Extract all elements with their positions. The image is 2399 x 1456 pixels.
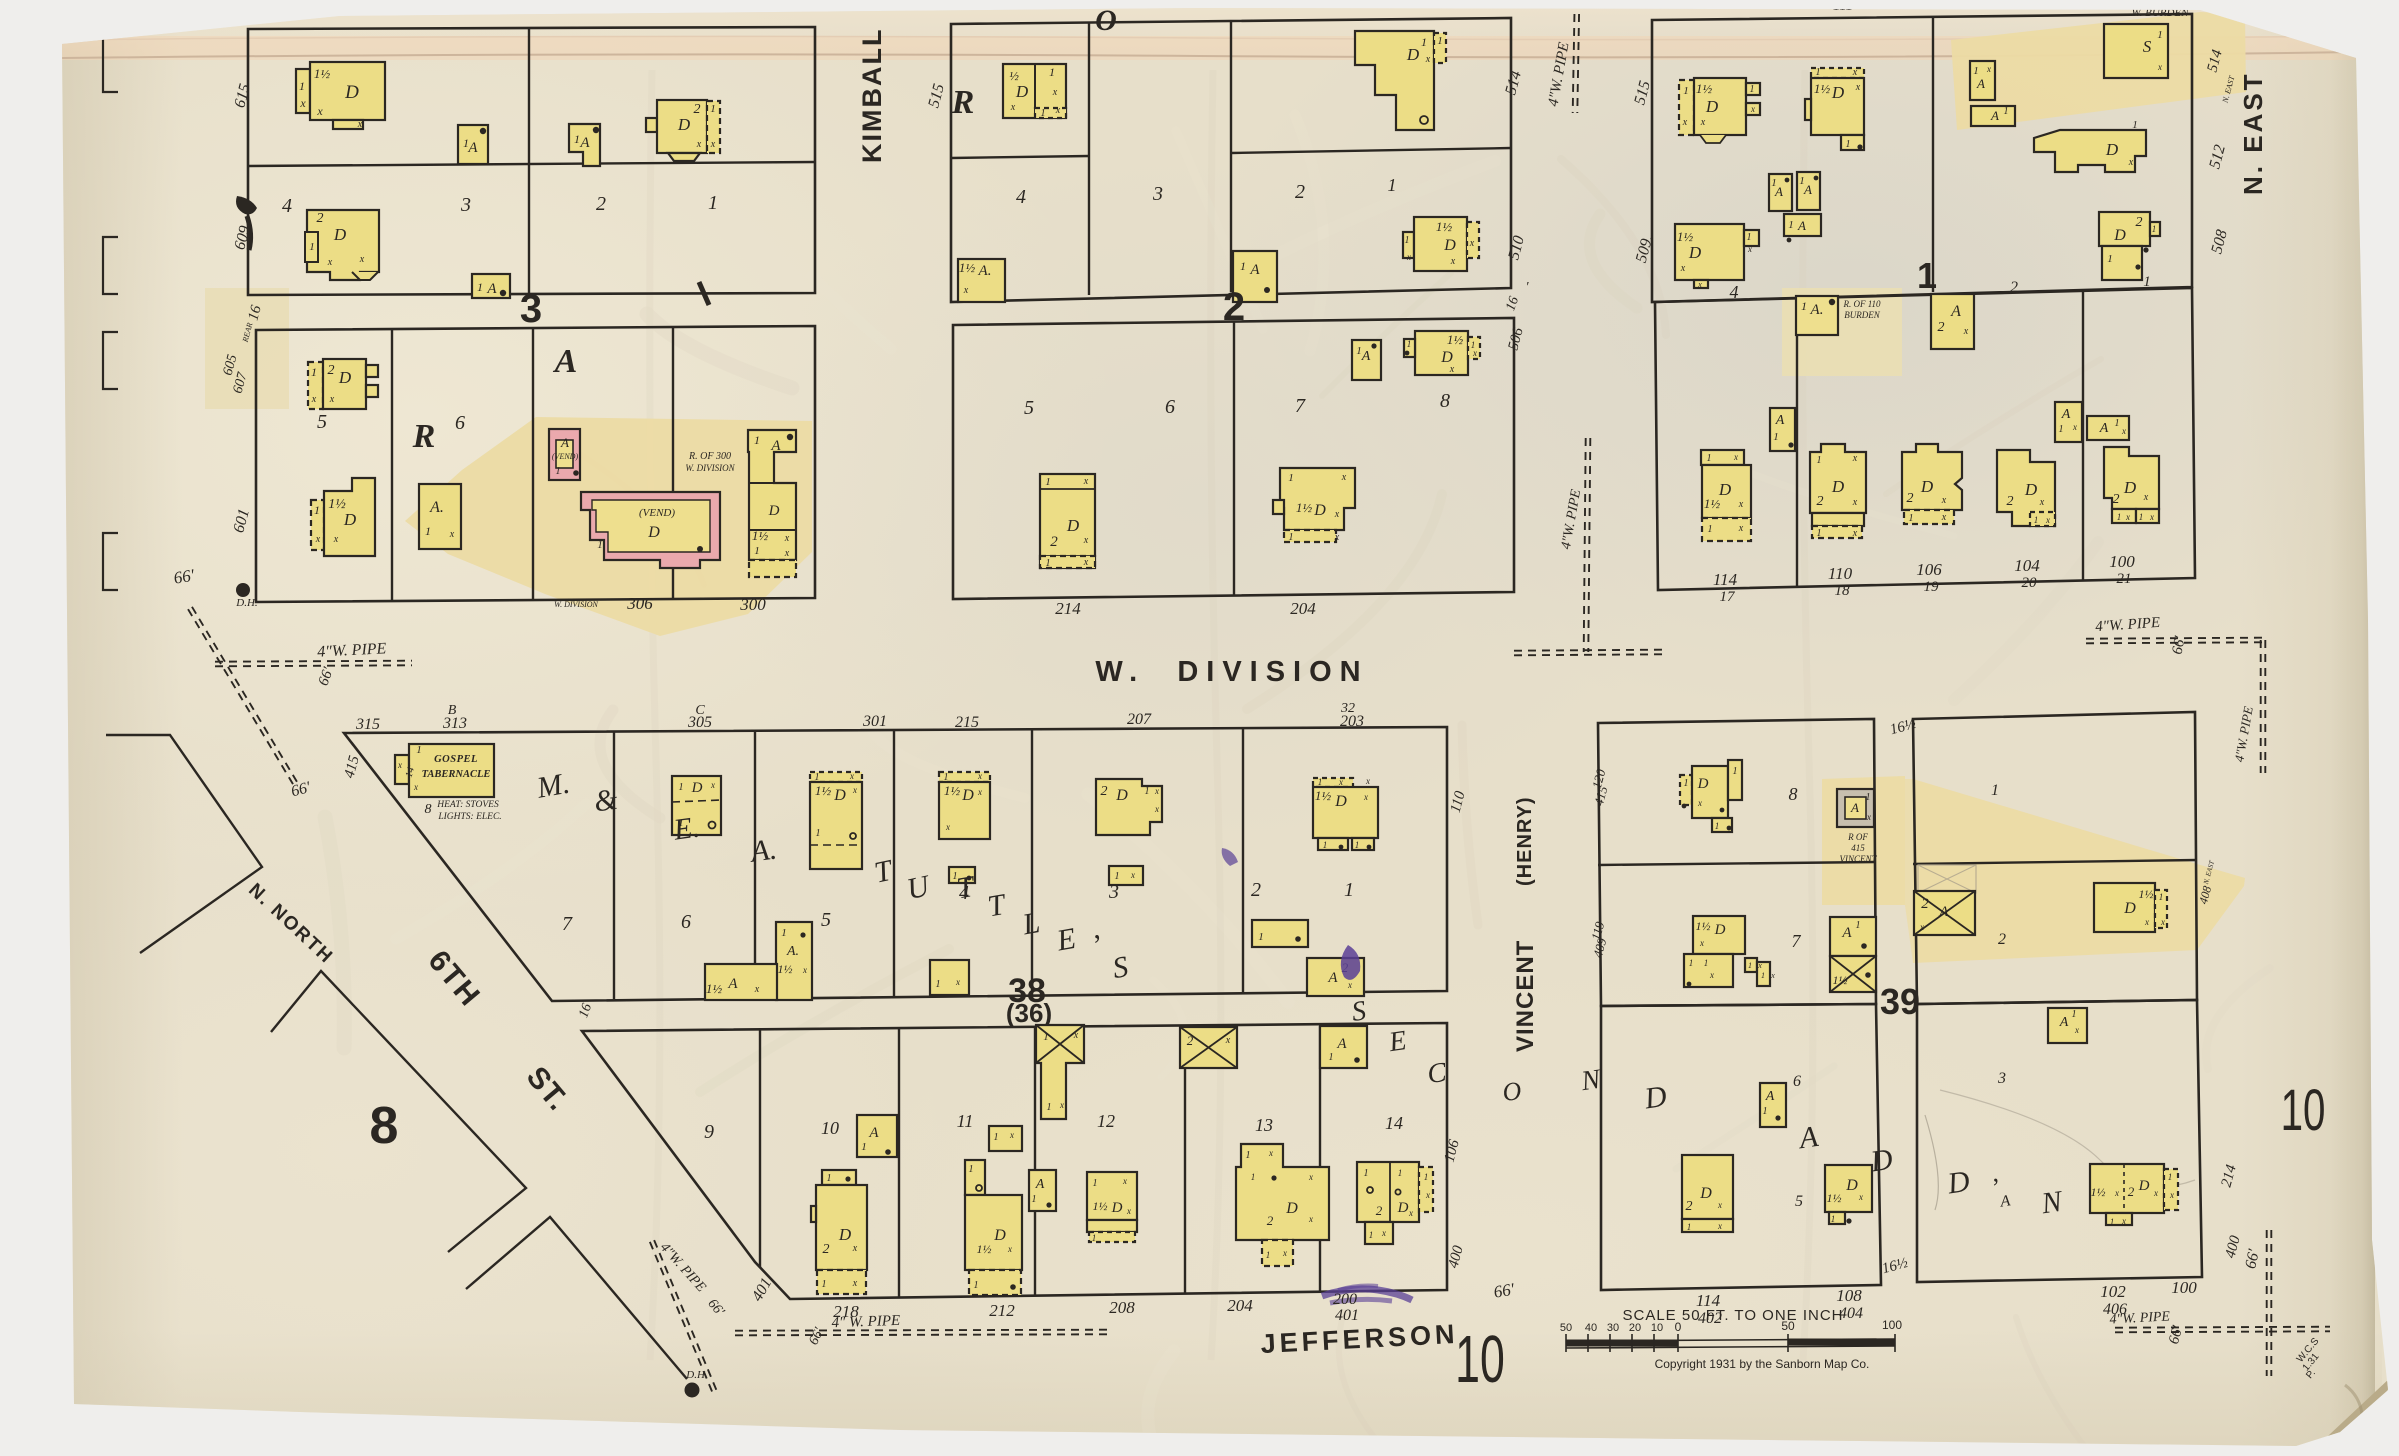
svg-text:21: 21 — [2117, 571, 2132, 587]
svg-text:1: 1 — [2143, 274, 2151, 290]
svg-text:1: 1 — [425, 524, 431, 538]
svg-text:x: x — [1852, 67, 1858, 78]
svg-text:x: x — [1308, 1172, 1313, 1182]
svg-text:2: 2 — [1295, 181, 1305, 203]
svg-text:x: x — [784, 533, 790, 544]
svg-text:1: 1 — [1909, 513, 1914, 524]
svg-text:x: x — [1449, 364, 1455, 375]
svg-text:x: x — [329, 394, 335, 405]
svg-text:x: x — [2074, 1025, 2079, 1035]
svg-text:x: x — [1073, 1030, 1079, 1041]
svg-text:R. OF 110: R. OF 110 — [1842, 299, 1881, 309]
svg-text:2: 2 — [1251, 879, 1261, 901]
svg-text:2: 2 — [1998, 931, 2006, 948]
svg-text:A: A — [1850, 800, 1859, 815]
svg-text:x: x — [784, 548, 790, 559]
svg-text:x: x — [1425, 54, 1431, 65]
svg-text:1: 1 — [1748, 961, 1752, 970]
svg-text:x: x — [413, 782, 418, 792]
svg-text:1: 1 — [2117, 512, 2122, 522]
svg-text:2: 2 — [2136, 215, 2143, 230]
svg-text:301: 301 — [862, 713, 887, 730]
svg-text:1½: 1½ — [314, 66, 331, 81]
svg-text:x: x — [1680, 263, 1686, 274]
svg-text:x: x — [1347, 980, 1352, 990]
svg-text:x: x — [977, 771, 982, 781]
svg-text:x: x — [1010, 102, 1016, 113]
svg-text:D: D — [677, 115, 691, 134]
svg-text:10: 10 — [1651, 1322, 1663, 1334]
svg-text:1: 1 — [1045, 476, 1051, 488]
svg-text:1½: 1½ — [1814, 81, 1831, 96]
svg-text:102: 102 — [2100, 1282, 2126, 1301]
svg-text:A: A — [1976, 76, 1985, 91]
svg-text:6: 6 — [1793, 1073, 1801, 1090]
svg-text:66′: 66′ — [172, 565, 196, 587]
svg-text:1½: 1½ — [1296, 500, 1313, 515]
svg-text:1: 1 — [1866, 792, 1871, 803]
svg-text:1: 1 — [1246, 1150, 1251, 1161]
svg-text:14: 14 — [1385, 1113, 1403, 1133]
svg-text:x: x — [1363, 792, 1368, 802]
svg-text:D: D — [1066, 516, 1080, 535]
svg-text:300: 300 — [739, 595, 766, 614]
svg-text:x: x — [1738, 499, 1744, 510]
svg-text:3: 3 — [460, 194, 471, 216]
svg-text:18: 18 — [1835, 583, 1851, 599]
svg-text:1: 1 — [1817, 528, 1822, 539]
svg-text:1: 1 — [1831, 1214, 1836, 1224]
svg-text:x: x — [1750, 104, 1755, 114]
svg-text:1: 1 — [2107, 253, 2113, 265]
svg-text:1: 1 — [969, 1164, 974, 1175]
svg-text:1: 1 — [1318, 777, 1323, 787]
svg-text:306: 306 — [626, 594, 653, 613]
svg-text:1: 1 — [311, 365, 317, 379]
svg-text:A: A — [2059, 1015, 2069, 1030]
svg-text:x: x — [852, 1243, 858, 1254]
svg-text:x: x — [1757, 961, 1762, 970]
svg-text:2: 2 — [317, 211, 324, 226]
svg-text:(36): (36) — [1006, 998, 1052, 1028]
svg-text:x: x — [1225, 1035, 1231, 1046]
svg-text:A: A — [560, 435, 569, 450]
svg-text:3: 3 — [1108, 881, 1119, 903]
svg-text:1: 1 — [861, 1141, 867, 1153]
svg-text:x: x — [1425, 1190, 1430, 1200]
svg-text:1½: 1½ — [1704, 496, 1721, 511]
svg-text:x: x — [1282, 1248, 1287, 1258]
svg-text:A: A — [1336, 1036, 1347, 1052]
svg-text:x: x — [1154, 786, 1159, 796]
svg-text:0: 0 — [1675, 1320, 1682, 1334]
svg-text:(VEND): (VEND) — [552, 452, 579, 461]
svg-text:x: x — [299, 96, 306, 110]
svg-text:1: 1 — [574, 132, 580, 146]
svg-text:13: 13 — [1255, 1115, 1273, 1135]
svg-text:x: x — [1126, 1206, 1131, 1216]
svg-text:A: A — [1803, 182, 1812, 197]
svg-text:D: D — [1397, 1200, 1409, 1216]
svg-text:E.: E. — [671, 810, 702, 846]
svg-text:1: 1 — [1856, 920, 1861, 931]
svg-text:1: 1 — [1773, 431, 1779, 443]
svg-text:10: 10 — [2281, 1076, 2326, 1142]
svg-text:x: x — [359, 254, 365, 265]
svg-text:x: x — [1682, 117, 1688, 128]
svg-text:A: A — [1249, 262, 1260, 278]
svg-text:x: x — [357, 119, 363, 130]
svg-text:1: 1 — [1733, 766, 1738, 777]
svg-text:20: 20 — [1629, 1322, 1641, 1334]
svg-text:x: x — [852, 1278, 858, 1289]
svg-text:x: x — [1450, 256, 1456, 267]
svg-text:2: 2 — [1686, 1199, 1693, 1214]
svg-text:1: 1 — [2115, 418, 2120, 429]
svg-text:x: x — [754, 984, 760, 995]
svg-text:D: D — [833, 787, 846, 804]
svg-text:1: 1 — [299, 79, 305, 93]
svg-text:315: 315 — [355, 716, 380, 733]
svg-text:M.: M. — [533, 767, 572, 805]
svg-text:x: x — [1130, 870, 1135, 880]
svg-text:1: 1 — [2159, 892, 2164, 902]
svg-text:x: x — [327, 257, 333, 268]
svg-text:x: x — [2114, 1188, 2119, 1198]
svg-text:1: 1 — [708, 192, 718, 214]
svg-text:2: 2 — [1921, 896, 1929, 912]
svg-text:A: A — [1841, 925, 1852, 941]
svg-text:1: 1 — [1421, 35, 1427, 49]
svg-text:1: 1 — [827, 1173, 832, 1184]
svg-text:1½: 1½ — [778, 962, 793, 976]
svg-text:x: x — [1154, 804, 1159, 814]
svg-text:A.: A. — [786, 944, 799, 959]
svg-text:4″ W. PIPE: 4″ W. PIPE — [831, 1313, 900, 1331]
svg-text:1: 1 — [1043, 1031, 1049, 1043]
svg-text:305: 305 — [687, 714, 712, 731]
svg-text:1½: 1½ — [1696, 81, 1713, 96]
svg-text:D: D — [768, 503, 780, 519]
svg-text:x: x — [1852, 453, 1858, 464]
svg-text:x: x — [1009, 1130, 1014, 1140]
svg-text:A: A — [727, 976, 738, 992]
svg-text:1: 1 — [816, 828, 821, 839]
svg-text:1½: 1½ — [1827, 1191, 1842, 1205]
svg-text:1: 1 — [556, 466, 561, 477]
svg-text:1: 1 — [1266, 1250, 1271, 1260]
svg-text:1½: 1½ — [1696, 919, 1711, 933]
svg-text:1: 1 — [1437, 35, 1443, 47]
svg-text:x: x — [1866, 812, 1871, 822]
svg-text:A: A — [467, 140, 478, 156]
svg-text:x: x — [945, 822, 950, 832]
svg-text:8: 8 — [1789, 784, 1798, 804]
svg-text:2: 2 — [328, 363, 335, 378]
svg-text:1: 1 — [1329, 1052, 1334, 1063]
svg-text:D: D — [647, 524, 660, 541]
svg-text:A: A — [1765, 1089, 1775, 1104]
svg-text:19: 19 — [1924, 579, 1940, 595]
svg-text:2: 2 — [1267, 1213, 1274, 1228]
svg-text:5: 5 — [821, 909, 831, 931]
svg-text:D: D — [1920, 477, 1934, 496]
svg-text:x: x — [333, 534, 339, 545]
svg-text:7: 7 — [1792, 931, 1802, 951]
svg-text:D: D — [1714, 922, 1726, 938]
svg-text:D: D — [1111, 1200, 1123, 1216]
svg-text:5: 5 — [1024, 397, 1034, 419]
svg-text:1: 1 — [1715, 821, 1720, 831]
svg-text:x: x — [1059, 1100, 1064, 1110]
svg-text:x: x — [802, 965, 807, 975]
svg-text:x: x — [1986, 64, 1991, 74]
svg-text:1: 1 — [1369, 1230, 1374, 1240]
svg-text:2: 2 — [596, 193, 606, 215]
svg-text:1: 1 — [1707, 453, 1712, 464]
svg-text:x: x — [1083, 476, 1089, 487]
svg-text:x: x — [1083, 535, 1089, 546]
svg-text:D: D — [2024, 480, 2038, 499]
svg-text:D: D — [691, 780, 703, 796]
svg-text:1: 1 — [1289, 532, 1294, 543]
svg-text:1: 1 — [679, 782, 684, 793]
svg-text:1½: 1½ — [959, 260, 976, 275]
svg-text:3: 3 — [1152, 183, 1163, 205]
svg-text:D: D — [1015, 82, 1029, 101]
svg-text:1: 1 — [1683, 85, 1689, 97]
svg-text:2: 2 — [2128, 1184, 2135, 1199]
svg-text:x: x — [1268, 1148, 1273, 1158]
svg-text:1½: 1½ — [977, 1242, 992, 1256]
svg-text:x: x — [1408, 1208, 1413, 1218]
svg-text:1: 1 — [2034, 515, 2039, 525]
svg-text:A: A — [1950, 303, 1961, 320]
svg-text:8: 8 — [1440, 390, 1450, 412]
svg-text:(VEND): (VEND) — [639, 507, 675, 519]
svg-text:x: x — [1007, 1244, 1012, 1254]
svg-text:W. DIVISION: W. DIVISION — [554, 600, 598, 609]
svg-text:2: 2 — [2113, 492, 2120, 507]
svg-text:415: 415 — [1851, 843, 1865, 853]
svg-text:x: x — [710, 139, 716, 150]
svg-text:204: 204 — [1290, 599, 1316, 618]
svg-text:2: 2 — [1101, 784, 1108, 799]
svg-text:1: 1 — [1917, 255, 1937, 296]
svg-text:x: x — [955, 977, 960, 987]
svg-text:x: x — [2144, 917, 2149, 927]
svg-text:1½: 1½ — [1436, 219, 1453, 234]
svg-text:1: 1 — [1344, 879, 1354, 901]
svg-text:D: D — [1443, 237, 1456, 254]
svg-text:1: 1 — [994, 1132, 999, 1143]
svg-text:x: x — [2143, 492, 2149, 503]
svg-text:5: 5 — [1795, 1193, 1803, 1210]
svg-text:D: D — [1845, 1177, 1858, 1194]
svg-text:1: 1 — [1323, 840, 1328, 850]
svg-text:1: 1 — [1388, 175, 1397, 195]
svg-text:2: 2 — [694, 102, 701, 117]
svg-text:1: 1 — [754, 545, 760, 557]
svg-text:1: 1 — [2004, 106, 2009, 117]
svg-text:R. OF 300: R. OF 300 — [688, 451, 731, 462]
svg-text:1½: 1½ — [1093, 1199, 1108, 1213]
svg-text:106: 106 — [1916, 560, 1942, 579]
svg-text:39: 39 — [1880, 981, 1920, 1022]
svg-text:x: x — [1406, 252, 1411, 262]
svg-text:1: 1 — [2157, 29, 2163, 41]
svg-text:1½: 1½ — [1447, 332, 1464, 347]
svg-text:D: D — [1688, 243, 1702, 262]
svg-text:1: 1 — [1093, 1178, 1098, 1189]
svg-text:x: x — [316, 104, 323, 118]
svg-text:A: A — [1327, 970, 1338, 986]
svg-text:A: A — [770, 438, 781, 454]
svg-text:4: 4 — [282, 195, 292, 217]
svg-text:D: D — [1705, 97, 1719, 116]
svg-text:203: 203 — [1340, 713, 1364, 730]
svg-text:D.H.: D.H. — [685, 1369, 707, 1381]
svg-text:A: A — [1361, 349, 1371, 364]
svg-text:D: D — [961, 787, 974, 804]
svg-text:1½: 1½ — [752, 528, 769, 543]
svg-text:x: x — [1770, 971, 1775, 980]
svg-text:4: 4 — [1730, 282, 1739, 302]
svg-text:7: 7 — [562, 913, 573, 935]
svg-text:D: D — [338, 368, 352, 387]
svg-text:x: x — [849, 771, 854, 781]
svg-text:4: 4 — [1016, 186, 1026, 208]
svg-text:1: 1 — [1251, 1172, 1256, 1182]
svg-text:1: 1 — [936, 979, 941, 990]
svg-text:A: A — [579, 135, 590, 151]
svg-text:D: D — [1831, 477, 1845, 496]
svg-text:1: 1 — [1750, 84, 1755, 95]
svg-text:x: x — [1697, 280, 1702, 289]
svg-text:5: 5 — [317, 411, 327, 433]
svg-text:O: O — [1095, 4, 1117, 37]
svg-text:D: D — [1831, 83, 1845, 102]
svg-text:1: 1 — [822, 1279, 827, 1290]
svg-text:1: 1 — [1991, 782, 1999, 799]
svg-text:100: 100 — [2171, 1278, 2197, 1297]
svg-text:2: 2 — [2010, 279, 2018, 296]
svg-text:208: 208 — [1109, 1298, 1135, 1317]
svg-text:A: A — [1990, 108, 1999, 123]
svg-text:1: 1 — [1817, 455, 1822, 466]
svg-text:R OF: R OF — [1847, 832, 1868, 842]
svg-text:A: A — [486, 281, 497, 297]
svg-text:D: D — [1285, 1200, 1298, 1217]
svg-text:40: 40 — [1585, 1322, 1597, 1334]
svg-text:10: 10 — [821, 1118, 839, 1138]
svg-text:114: 114 — [1713, 570, 1738, 589]
svg-text:A.: A. — [1810, 302, 1824, 318]
svg-text:1½: 1½ — [706, 981, 723, 996]
svg-text:x: x — [2153, 1188, 2158, 1198]
svg-text:207: 207 — [1127, 711, 1152, 728]
svg-text:2: 2 — [1376, 1203, 1383, 1218]
svg-text:D: D — [1313, 502, 1326, 519]
svg-text:11: 11 — [957, 1111, 974, 1131]
svg-text:x: x — [1334, 509, 1340, 520]
svg-text:D: D — [1115, 787, 1128, 804]
svg-text:1: 1 — [1761, 971, 1765, 980]
svg-text:1: 1 — [309, 241, 315, 253]
svg-text:x: x — [2149, 512, 2154, 522]
svg-text:D: D — [2105, 140, 2119, 159]
svg-text:66′: 66′ — [2170, 634, 2189, 655]
svg-text:D: D — [1334, 793, 1347, 810]
svg-text:1: 1 — [2168, 1172, 2173, 1182]
svg-text:x: x — [1858, 1192, 1863, 1202]
svg-text:x: x — [2039, 497, 2045, 508]
svg-text:D: D — [1699, 1185, 1712, 1202]
svg-text:1: 1 — [1846, 139, 1851, 150]
svg-text:D: D — [2138, 1178, 2150, 1194]
svg-text:2: 2 — [1223, 285, 1245, 329]
svg-text:S: S — [2143, 37, 2152, 56]
svg-text:TABERNACLE: TABERNACLE — [422, 769, 491, 780]
svg-text:x: x — [1733, 452, 1738, 462]
svg-text:x: x — [1699, 938, 1704, 948]
svg-text:D: D — [343, 510, 357, 529]
svg-text:3: 3 — [1997, 1070, 2006, 1087]
svg-text:LIGHTS: ELEC.: LIGHTS: ELEC. — [437, 812, 501, 822]
svg-text:2: 2 — [1938, 320, 1945, 335]
svg-text:1: 1 — [2072, 1009, 2077, 1020]
svg-text:1½: 1½ — [815, 783, 832, 798]
svg-text:x: x — [977, 787, 982, 797]
svg-text:x: x — [1941, 512, 1947, 523]
svg-text:x: x — [1709, 970, 1714, 980]
svg-text:1: 1 — [597, 539, 603, 551]
svg-text:2: 2 — [1187, 1033, 1194, 1048]
svg-text:7: 7 — [1295, 395, 1306, 417]
svg-text:100: 100 — [1882, 1318, 1902, 1332]
svg-text:9: 9 — [704, 1121, 714, 1143]
svg-text:x: x — [1472, 348, 1477, 358]
svg-text:1: 1 — [314, 503, 320, 517]
svg-text:R: R — [412, 418, 436, 455]
svg-text:x: x — [1700, 117, 1706, 128]
svg-text:A: A — [1774, 184, 1783, 199]
svg-text:1: 1 — [1801, 299, 1807, 313]
svg-text:x: x — [1083, 557, 1089, 568]
svg-text:x: x — [397, 760, 402, 770]
svg-text:x: x — [1697, 798, 1702, 808]
svg-text:x: x — [2157, 62, 2162, 72]
svg-text:x: x — [449, 529, 455, 540]
svg-text:1½: 1½ — [1315, 788, 1332, 803]
svg-text:D: D — [1697, 776, 1709, 792]
svg-text:x: x — [1852, 528, 1858, 539]
svg-text:1: 1 — [1041, 108, 1046, 119]
svg-text:VINCENT: VINCENT — [1512, 940, 1539, 1052]
svg-text:1: 1 — [1763, 1106, 1768, 1117]
svg-text:x: x — [1469, 238, 1475, 249]
svg-text:1: 1 — [1704, 958, 1709, 968]
svg-text:D.H.: D.H. — [235, 597, 257, 609]
svg-text:x: x — [2169, 1190, 2174, 1200]
svg-text:50: 50 — [1560, 1322, 1572, 1334]
svg-text:1: 1 — [1145, 786, 1150, 797]
svg-text:1: 1 — [1355, 840, 1360, 850]
svg-text:x: x — [1919, 922, 1924, 932]
svg-text:212: 212 — [989, 1301, 1015, 1320]
svg-text:A: A — [1797, 218, 1806, 233]
svg-text:x: x — [2121, 1216, 2126, 1226]
